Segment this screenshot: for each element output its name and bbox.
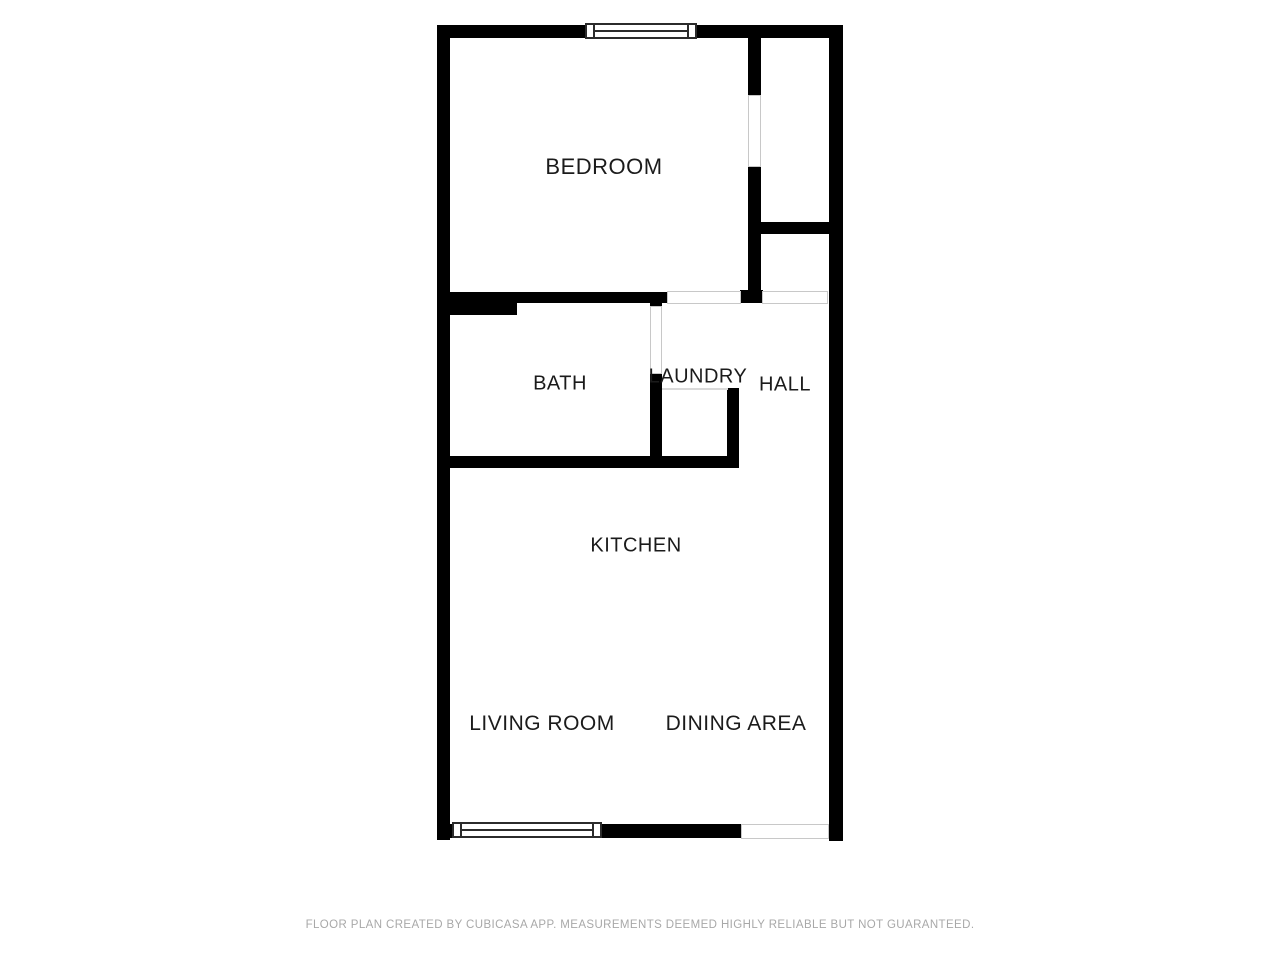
window-rail-icon — [595, 30, 687, 32]
bedroom-hall-opening — [667, 291, 741, 304]
bedroom-closet-door-opening — [748, 95, 761, 167]
room-label-kitchen: KITCHEN — [590, 535, 681, 558]
wall-bedroom-closet-divider-upper — [748, 38, 761, 96]
window-rail-icon — [462, 829, 592, 831]
closet-nook-opening — [762, 291, 828, 304]
room-label-bath: BATH — [533, 373, 587, 396]
footer-disclaimer: FLOOR PLAN CREATED BY CUBICASA APP. MEAS… — [0, 919, 1280, 931]
floor-plan: BEDROOM BATH LAUNDRY HALL KITCHEN LIVING… — [0, 0, 1280, 960]
room-label-living-room: LIVING ROOM — [469, 712, 615, 736]
wall-outer-right — [829, 25, 843, 841]
window-mullion-icon — [687, 25, 689, 37]
window-top-icon — [585, 23, 697, 39]
wall-laundry-right — [727, 388, 739, 465]
wall-bedroom-closet-divider-lower — [748, 166, 761, 292]
wall-outer-left — [437, 25, 450, 840]
entry-opening — [741, 824, 829, 839]
wall-closet-bottom — [761, 222, 829, 234]
wall-bath-plumbing-block — [437, 303, 517, 315]
wall-bath-laundry-bottom — [437, 456, 739, 468]
window-bottom-icon — [452, 822, 602, 838]
room-label-hall: HALL — [759, 374, 811, 397]
wall-bedroom-bottom — [437, 292, 668, 303]
room-label-laundry: LAUNDRY — [649, 366, 748, 389]
room-label-dining-area: DINING AREA — [666, 712, 807, 736]
room-label-bedroom: BEDROOM — [545, 154, 662, 180]
window-mullion-icon — [592, 824, 594, 836]
wall-hall-junction-block — [740, 290, 763, 303]
bath-door-opening — [650, 306, 662, 374]
